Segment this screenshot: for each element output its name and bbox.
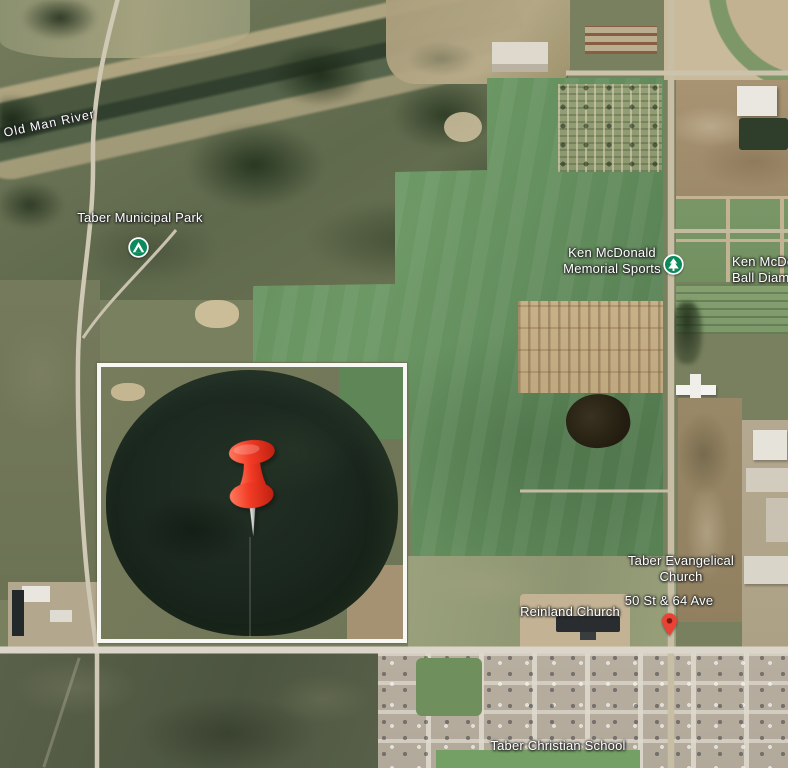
campground-icon[interactable]	[128, 237, 149, 258]
label-reinland-church[interactable]: Reinland Church	[520, 604, 620, 620]
label-line: Church	[628, 569, 734, 585]
label-taber-evangelical-church[interactable]: Taber Evangelical Church	[628, 553, 734, 584]
label-line: Memorial Sports	[563, 261, 661, 277]
label-line: Ball Diamond	[732, 270, 788, 286]
field-track	[249, 537, 251, 637]
label-line: Ken McDonald	[732, 254, 788, 270]
satellite-map-canvas[interactable]: Old Man River Taber Municipal Park Ken M…	[0, 0, 788, 768]
red-pushpin-marker[interactable]	[218, 435, 290, 540]
pushpin-needle	[249, 504, 258, 536]
label-taber-christian-school[interactable]: Taber Christian School	[490, 738, 625, 754]
pushpin-base	[229, 480, 275, 510]
label-taber-municipal-park[interactable]: Taber Municipal Park	[77, 210, 202, 226]
label-ken-mcdonald-memorial-sports[interactable]: Ken McDonald Memorial Sports	[563, 245, 661, 276]
red-map-marker[interactable]	[662, 613, 677, 636]
label-ken-mcdonald-ball-diamond[interactable]: Ken McDonald Ball Diamond	[732, 254, 788, 285]
park-tree-icon[interactable]	[663, 254, 684, 275]
parcel-tan-clearing	[111, 383, 145, 401]
label-50-st-64-ave: 50 St & 64 Ave	[625, 593, 714, 609]
label-line: Ken McDonald	[563, 245, 661, 261]
label-line: Taber Evangelical	[628, 553, 734, 569]
